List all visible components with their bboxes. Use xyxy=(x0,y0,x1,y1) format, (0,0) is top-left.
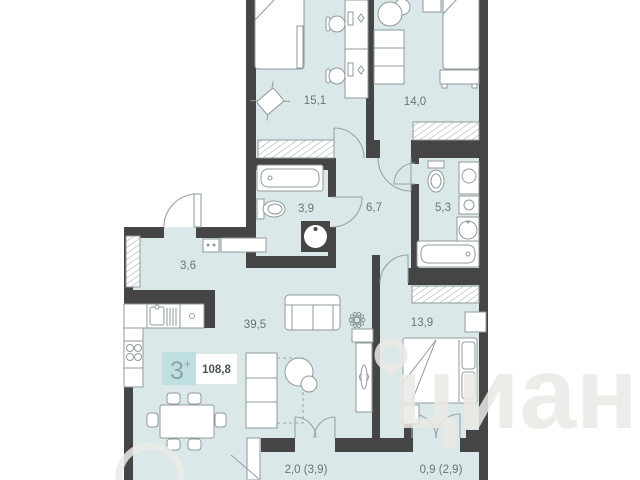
room-label-bedroom-master: 13,9 xyxy=(411,317,433,329)
desk xyxy=(423,0,441,12)
wall xyxy=(124,290,215,304)
monitor xyxy=(348,12,353,25)
room-label-bedroom-top-right: 14,0 xyxy=(404,96,426,108)
wall xyxy=(411,140,479,158)
wall xyxy=(261,438,295,452)
room-label-entry: 3,6 xyxy=(180,260,196,272)
faucet xyxy=(155,305,159,309)
wall xyxy=(479,0,488,480)
shelf-unit xyxy=(246,353,277,428)
shoe-cabinet xyxy=(203,239,219,252)
pillow xyxy=(462,342,475,369)
drain xyxy=(466,252,470,256)
nightstand xyxy=(403,405,419,424)
wall xyxy=(460,438,479,452)
toilet-tank xyxy=(428,161,444,168)
tv-screen xyxy=(361,365,367,389)
desk-chair xyxy=(329,68,345,84)
floor-plan-page: 15,1 14,0 3,9 6,7 5,3 3,6 39,5 13,9 2,0 … xyxy=(0,0,640,480)
shelf-unit xyxy=(374,30,404,84)
floor-plan-svg: 15,1 14,0 3,9 6,7 5,3 3,6 39,5 13,9 2,0 … xyxy=(0,0,640,480)
wardrobe-entry xyxy=(126,236,140,287)
wall xyxy=(408,268,488,285)
wall xyxy=(366,140,380,158)
bed-rail xyxy=(297,26,303,68)
desk-chair xyxy=(329,16,345,32)
nightstand xyxy=(465,312,486,332)
bench xyxy=(221,238,266,252)
toilet xyxy=(428,170,444,192)
wall xyxy=(466,430,479,440)
room-label-hallway: 6,7 xyxy=(366,202,382,214)
room-label-loggia-bedroom: 0,9 (2,9) xyxy=(420,464,463,476)
dining-table xyxy=(160,405,214,438)
pillow xyxy=(462,372,475,399)
room-label-loggia-living: 2,0 (3,9) xyxy=(285,464,328,476)
wall xyxy=(372,255,380,452)
drain xyxy=(268,176,272,180)
room-label-living: 39,5 xyxy=(244,319,266,331)
bed-bench xyxy=(440,70,479,84)
wall xyxy=(335,438,412,452)
summary-badge: 3+ 108,8 xyxy=(162,352,237,385)
wardrobe-bedroom-master xyxy=(412,286,479,303)
wardrobe-bedroom-top-right xyxy=(413,122,479,140)
monitor xyxy=(348,63,353,76)
wall xyxy=(328,158,336,197)
room-label-bedroom-top-left: 15,1 xyxy=(304,95,326,107)
wardrobe-bedroom-top-left xyxy=(258,140,334,158)
room-label-bathroom-second: 5,3 xyxy=(435,202,451,214)
front-door xyxy=(164,194,201,227)
coffee-table xyxy=(301,376,317,392)
total-area-value: 108,8 xyxy=(202,364,231,376)
wall xyxy=(246,256,336,268)
pouf xyxy=(378,2,402,26)
furniture-entry xyxy=(203,238,266,252)
bed xyxy=(443,0,479,69)
room-label-bathroom-main: 3,9 xyxy=(298,203,314,215)
column xyxy=(352,329,373,342)
wall xyxy=(204,290,215,328)
dryer xyxy=(459,196,479,214)
wall xyxy=(196,227,256,238)
